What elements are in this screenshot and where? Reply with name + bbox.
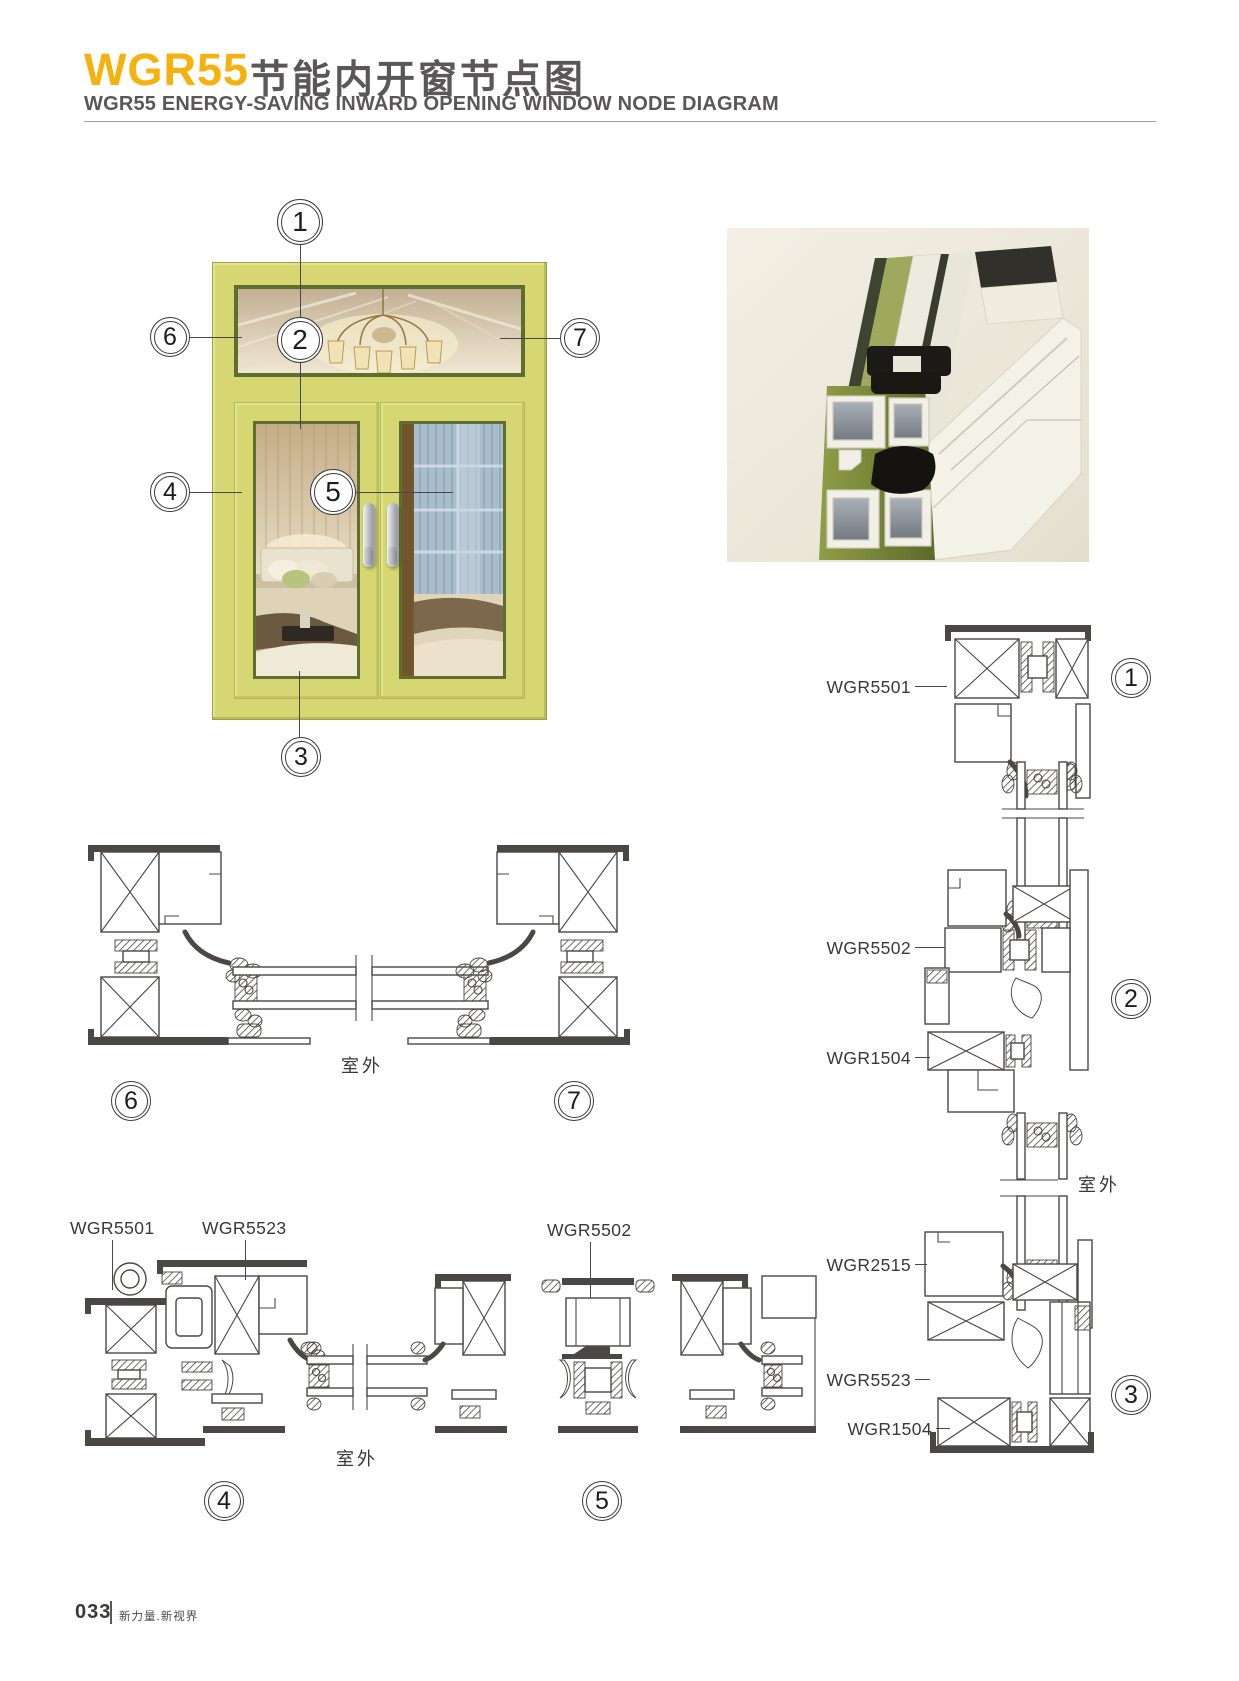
mullion-profile (542, 1278, 654, 1433)
catalog-page: WGR55 节能内开窗节点图 WGR55 ENERGY-SAVING INWAR… (0, 0, 1239, 1681)
callout-6: 6 (150, 317, 190, 357)
section-6-num: 6 (124, 1087, 138, 1116)
callout-4-num: 4 (163, 478, 177, 507)
handle-left (363, 503, 375, 567)
glass-left (253, 421, 360, 679)
callout-2: 2 (277, 317, 323, 363)
footer-divider (110, 1601, 112, 1624)
node-2-num: 2 (1124, 985, 1138, 1014)
callout-node-2: 2 (1111, 979, 1151, 1019)
section-45-drawing (62, 1248, 822, 1448)
casement-left (234, 402, 379, 699)
callout-line (356, 492, 453, 493)
sash-profile-center-left (425, 1274, 511, 1433)
leader-line (915, 686, 947, 687)
leader-line (245, 1240, 246, 1280)
bedroom-image-left (256, 424, 357, 676)
frame-profile-right (408, 845, 630, 1045)
node-3-sill-profile (925, 1232, 1094, 1453)
label-node3-wgr2515: WGR2515 (811, 1255, 911, 1276)
callout-section-5: 5 (582, 1481, 622, 1521)
section-4-num: 4 (217, 1487, 231, 1516)
leader-line (915, 1057, 930, 1058)
callout-1-num: 1 (292, 206, 308, 238)
label-wgr5523-45: WGR5523 (202, 1218, 287, 1239)
series-code: WGR55 (84, 44, 249, 96)
callout-5: 5 (310, 469, 356, 515)
leader-line (112, 1240, 113, 1290)
callout-7: 7 (560, 318, 600, 358)
section-7-num: 7 (567, 1087, 581, 1116)
leader-line (915, 947, 945, 948)
callout-3-num: 3 (294, 743, 308, 772)
glass-unit-left (307, 1342, 427, 1410)
section-5-num: 5 (595, 1487, 609, 1516)
section-right-drawing (918, 618, 1103, 1466)
callout-section-6: 6 (111, 1081, 151, 1121)
frame-profile-left (88, 845, 310, 1045)
profile-3d-render (727, 228, 1089, 562)
label-node3-wgr5523: WGR5523 (811, 1370, 911, 1391)
leader-line (915, 1379, 930, 1380)
sash-profile-left (157, 1260, 325, 1433)
callout-line (190, 337, 242, 338)
label-node3-wgr1504: WGR1504 (832, 1419, 932, 1440)
node-3-num: 3 (1124, 1381, 1138, 1410)
outdoor-label-right: 室外 (1059, 1171, 1139, 1197)
label-node1-wgr5501: WGR5501 (811, 677, 911, 698)
page-subtitle: WGR55 ENERGY-SAVING INWARD OPENING WINDO… (84, 93, 779, 116)
callout-section-7: 7 (554, 1081, 594, 1121)
label-node2-wgr1504: WGR1504 (811, 1048, 911, 1069)
callout-4: 4 (150, 472, 190, 512)
sash-profile-center-right (672, 1274, 759, 1433)
leader-line (915, 1264, 927, 1265)
label-node2-wgr5502: WGR5502 (811, 938, 911, 959)
label-wgr5501-45: WGR5501 (70, 1218, 155, 1239)
label-wgr5502-45: WGR5502 (547, 1220, 632, 1241)
outdoor-label-67: 室外 (322, 1052, 402, 1078)
callout-3: 3 (281, 737, 321, 777)
callout-line (300, 245, 301, 317)
glass-unit (233, 955, 488, 1021)
callout-7-num: 7 (573, 324, 587, 353)
callout-line (500, 338, 560, 339)
section-67-drawing (85, 843, 635, 1055)
glass-right (399, 421, 506, 679)
callout-line (300, 363, 301, 429)
curtain-image-right (402, 424, 503, 676)
callout-node-3: 3 (1111, 1375, 1151, 1415)
callout-6-num: 6 (163, 323, 177, 352)
footer-slogan: 新力量.新视界 (119, 1608, 198, 1624)
window-illustration (212, 262, 547, 720)
page-number: 033 (75, 1601, 111, 1624)
callout-line (299, 671, 300, 737)
callout-2-num: 2 (292, 324, 308, 356)
leader-line (936, 1428, 950, 1429)
header-rule (84, 121, 1156, 122)
callout-node-1: 1 (1111, 658, 1151, 698)
outdoor-label-45: 室外 (317, 1445, 397, 1471)
callout-section-4: 4 (204, 1481, 244, 1521)
casement-right (380, 402, 525, 699)
leader-line (590, 1242, 591, 1298)
callout-line (190, 492, 242, 493)
callout-1: 1 (277, 199, 323, 245)
callout-5-num: 5 (325, 476, 341, 508)
node-1-num: 1 (1124, 664, 1138, 693)
render-image (727, 228, 1089, 562)
glass-unit-right (752, 1276, 816, 1433)
handle-right (387, 503, 399, 567)
node-2-transom-profile (925, 870, 1088, 1112)
